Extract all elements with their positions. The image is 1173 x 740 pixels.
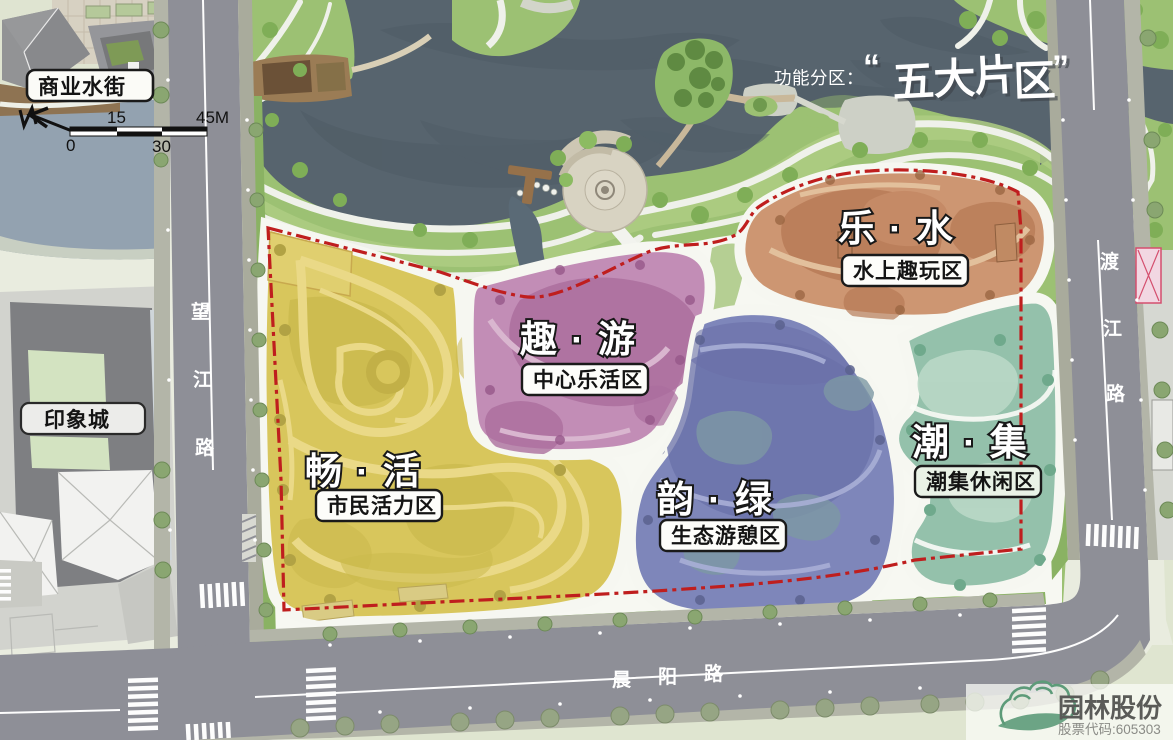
svg-text:水上趣玩区: 水上趣玩区 xyxy=(853,260,963,283)
svg-text:韵 · 绿: 韵 · 绿 xyxy=(657,479,774,520)
svg-text:江: 江 xyxy=(1103,318,1123,340)
svg-text:乐 · 水: 乐 · 水 xyxy=(838,208,955,249)
svg-text:趣 · 游: 趣 · 游 xyxy=(520,319,637,360)
svg-text:望: 望 xyxy=(191,300,211,323)
svg-text:商业水街: 商业水街 xyxy=(38,75,126,99)
svg-text:晨: 晨 xyxy=(612,669,632,691)
svg-text:中心乐活区: 中心乐活区 xyxy=(533,369,643,392)
svg-text:市民活力区: 市民活力区 xyxy=(327,494,437,518)
svg-text:潮集休闲区: 潮集休闲区 xyxy=(926,470,1036,494)
svg-text:印象城: 印象城 xyxy=(44,408,110,432)
svg-text:路: 路 xyxy=(195,436,215,459)
svg-text:路: 路 xyxy=(1106,382,1126,405)
svg-text:“: “ xyxy=(863,48,880,86)
svg-text:”: ” xyxy=(1052,49,1069,87)
svg-text:路: 路 xyxy=(704,662,724,685)
svg-text:15: 15 xyxy=(107,108,126,127)
svg-text:股票代码:605303: 股票代码:605303 xyxy=(1058,722,1161,737)
svg-text:大: 大 xyxy=(933,55,977,103)
svg-text:区: 区 xyxy=(1013,57,1057,105)
svg-text:生态游憩区: 生态游憩区 xyxy=(671,524,781,548)
svg-text:功能分区：: 功能分区： xyxy=(774,68,864,88)
svg-text:五: 五 xyxy=(891,57,935,106)
svg-text:园林股份: 园林股份 xyxy=(1058,693,1162,723)
svg-text:片: 片 xyxy=(973,51,1017,100)
svg-text:45M: 45M xyxy=(196,108,229,127)
svg-text:潮 · 集: 潮 · 集 xyxy=(912,422,1029,463)
svg-text:江: 江 xyxy=(193,369,213,391)
svg-text:阳: 阳 xyxy=(658,666,678,688)
svg-text:30: 30 xyxy=(152,137,171,156)
svg-text:0: 0 xyxy=(66,136,75,155)
svg-text:渡: 渡 xyxy=(1100,250,1120,273)
svg-text:畅 · 活: 畅 · 活 xyxy=(305,451,422,492)
